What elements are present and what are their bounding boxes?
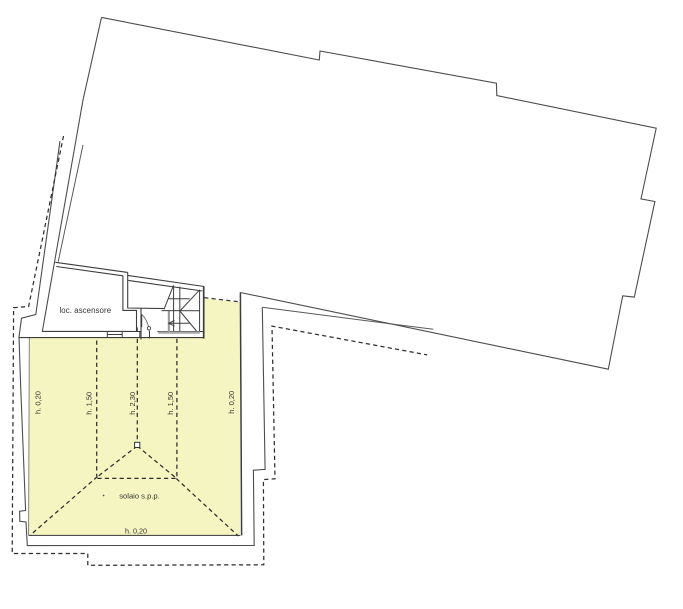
svg-text:loc. ascensore: loc. ascensore [59,306,111,315]
svg-text:h. 2,30: h. 2,30 [128,392,137,415]
svg-text:h. 0,20: h. 0,20 [125,527,147,536]
svg-text:h. 1,50: h. 1,50 [166,392,175,415]
svg-text:h. 1,50: h. 1,50 [85,392,94,415]
svg-text:h. 0,20: h. 0,20 [33,391,42,414]
svg-text:h. 0,20: h. 0,20 [227,391,236,414]
svg-text:solaio s.p.p.: solaio s.p.p. [119,492,160,501]
